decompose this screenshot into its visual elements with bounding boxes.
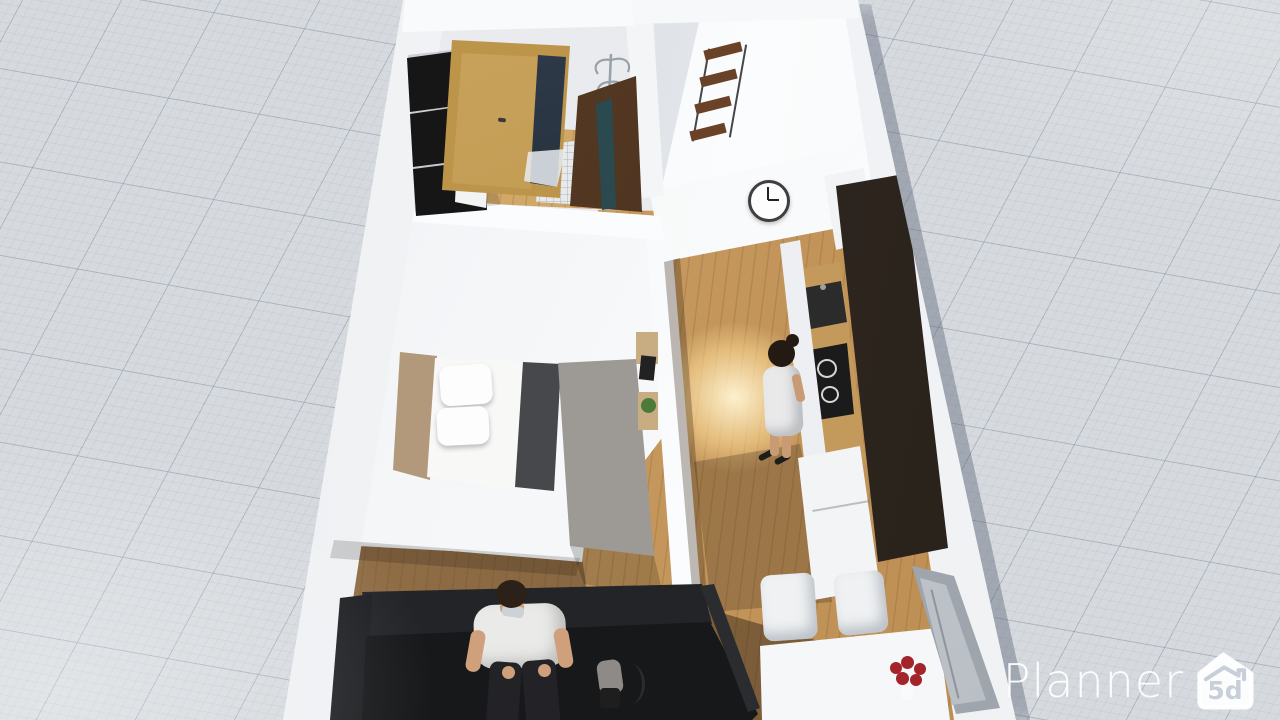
planner5d-watermark: Planner 5d [1003,652,1254,710]
watermark-badge-text: 5d [1196,676,1254,705]
shelf-picture-frame[interactable] [639,355,656,380]
sink-faucet [820,284,826,290]
render-viewport: Planner 5d [0,0,1280,720]
bed-pillow-1 [439,363,494,407]
watermark-brand-text: Planner [1003,658,1184,704]
flower-4 [896,672,909,685]
flower-vase [902,686,913,700]
planner5d-house-icon: 5d [1196,652,1254,710]
cooktop-burner-1 [817,359,837,378]
man-left-hand [502,666,515,679]
flower-5 [910,674,922,686]
flower-bouquet[interactable] [888,654,930,700]
man-sitting-on-sofa[interactable] [460,578,620,720]
woman-standing-in-kitchen[interactable] [756,334,808,464]
flower-2 [901,656,914,669]
man-hair [496,580,527,608]
woman-hair-bun [786,334,799,347]
cooktop-burner-2 [821,386,839,403]
man-right-hand [538,664,551,677]
wall-clock[interactable] [748,180,790,222]
bed-pillow-2 [436,406,490,447]
vacuum-handle [616,664,645,704]
clock-hour-hand [768,199,779,201]
dining-chair-1[interactable] [760,572,818,642]
dining-chair-2[interactable] [833,570,889,637]
shelf-plant[interactable] [641,398,656,413]
